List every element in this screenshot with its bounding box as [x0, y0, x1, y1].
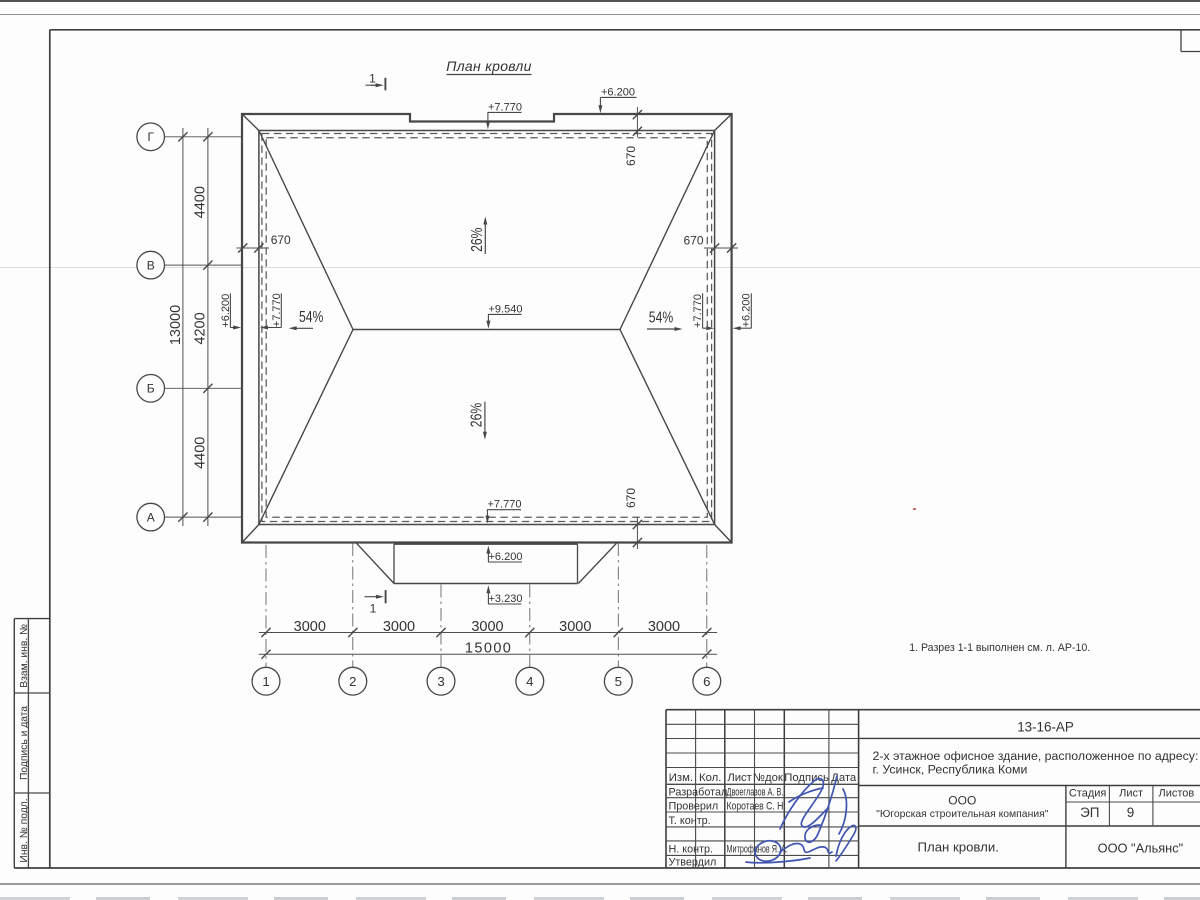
svg-text:+6.200: +6.200	[601, 86, 635, 98]
svg-text:Листов: Листов	[1159, 788, 1195, 800]
svg-text:+3.230: +3.230	[489, 593, 523, 605]
svg-text:Двоеглазов А. В.: Двоеглазов А. В.	[727, 786, 784, 798]
svg-text:В: В	[147, 258, 155, 272]
svg-text:15000: 15000	[465, 640, 512, 656]
svg-text:1: 1	[369, 72, 376, 86]
svg-text:Лист: Лист	[1119, 788, 1143, 800]
svg-text:Коротаев С. Н.: Коротаев С. Н.	[727, 801, 786, 813]
svg-text:Изм.: Изм.	[669, 772, 693, 784]
svg-text:Подпись и дата: Подпись и дата	[19, 706, 30, 780]
svg-text:"Югорская строительная компани: "Югорская строительная компания"	[876, 809, 1049, 820]
svg-text:ООО "Альянс": ООО "Альянс"	[1098, 841, 1184, 856]
svg-text:Взам. инв. №: Взам. инв. №	[19, 624, 30, 688]
svg-text:54%: 54%	[299, 309, 323, 326]
svg-text:План кровли.: План кровли.	[918, 840, 999, 855]
svg-text:Стадия: Стадия	[1069, 788, 1107, 800]
svg-text:6: 6	[703, 674, 710, 689]
svg-text:ООО: ООО	[948, 794, 976, 808]
svg-text:4: 4	[526, 674, 533, 689]
svg-text:5: 5	[615, 674, 622, 689]
svg-text:2-х этажное офисное здание, ра: 2-х этажное офисное здание, расположенно…	[873, 749, 1199, 763]
svg-text:2: 2	[349, 674, 356, 689]
svg-text:г. Усинск, Республика Коми: г. Усинск, Республика Коми	[873, 763, 1028, 777]
svg-text:3000: 3000	[383, 619, 415, 635]
svg-text:4200: 4200	[192, 312, 208, 344]
svg-text:670: 670	[271, 233, 291, 247]
svg-text:Проверил: Проверил	[669, 801, 719, 813]
svg-text:3000: 3000	[294, 619, 326, 635]
svg-text:3000: 3000	[648, 619, 680, 635]
svg-text:Разработал: Разработал	[669, 787, 728, 799]
svg-text:№док.: №док.	[753, 772, 786, 784]
svg-text:670: 670	[624, 488, 638, 508]
svg-text:Н. контр.: Н. контр.	[669, 844, 714, 856]
svg-text:3000: 3000	[559, 619, 591, 635]
svg-text:Кол.: Кол.	[699, 772, 721, 784]
svg-text:9: 9	[1127, 805, 1135, 820]
svg-text:+7.770: +7.770	[488, 499, 522, 511]
svg-text:670: 670	[683, 234, 703, 248]
svg-text:Лист: Лист	[727, 772, 752, 784]
svg-text:Б: Б	[147, 382, 155, 396]
svg-text:4400: 4400	[192, 437, 208, 469]
svg-text:1. Разрез 1-1 выполнен см. л.: 1. Разрез 1-1 выполнен см. л. АР-10.	[909, 642, 1090, 654]
svg-text:3: 3	[437, 674, 444, 689]
svg-text:13000: 13000	[168, 305, 184, 345]
svg-text:+9.540: +9.540	[489, 303, 523, 315]
svg-text:26%: 26%	[467, 227, 485, 252]
svg-text:26%: 26%	[467, 402, 485, 427]
svg-text:1: 1	[262, 674, 269, 689]
svg-text:А: А	[147, 510, 155, 524]
svg-text:Т. контр.: Т. контр.	[669, 815, 711, 827]
svg-text:1: 1	[370, 602, 377, 616]
svg-text:План кровли: План кровли	[446, 58, 531, 74]
svg-text:+6.200: +6.200	[489, 551, 523, 563]
svg-text:Инв. № подл.: Инв. № подл.	[19, 798, 30, 862]
svg-text:Утвердил: Утвердил	[669, 857, 717, 869]
svg-text:54%: 54%	[649, 309, 673, 326]
svg-text:13-16-АР: 13-16-АР	[1017, 720, 1074, 735]
svg-text:3000: 3000	[471, 619, 503, 635]
svg-text:670: 670	[624, 146, 638, 166]
svg-text:+7.770: +7.770	[488, 101, 522, 113]
svg-text:Подпись: Подпись	[784, 772, 829, 784]
svg-text:4400: 4400	[192, 186, 208, 218]
svg-text:ЭП: ЭП	[1080, 805, 1099, 820]
svg-text:Г: Г	[147, 130, 154, 144]
